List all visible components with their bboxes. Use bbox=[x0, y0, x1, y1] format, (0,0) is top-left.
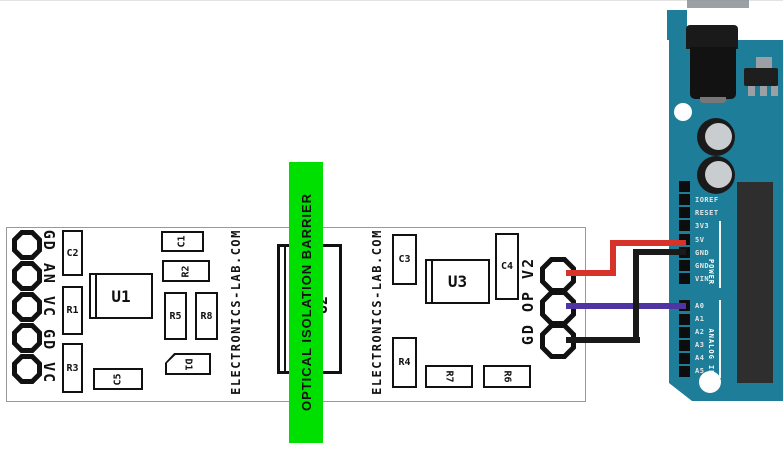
header-slot bbox=[737, 182, 773, 383]
pad-an-hole bbox=[17, 266, 37, 286]
analog-pin-a1 bbox=[679, 314, 690, 325]
component-r7: R7 bbox=[425, 365, 473, 388]
brand-text-left: ELECTRONICS-LAB.COM bbox=[229, 227, 243, 397]
component-c3: C3 bbox=[392, 234, 417, 285]
barrel-jack-cap bbox=[686, 25, 738, 49]
component-r5: R5 bbox=[164, 292, 187, 340]
pin-label-a5: A5 bbox=[695, 367, 704, 375]
mounting-hole-top bbox=[674, 103, 692, 121]
analog-pin-a4 bbox=[679, 353, 690, 364]
pad-vc-1-hole bbox=[17, 297, 37, 317]
barrel-jack-lip bbox=[700, 97, 726, 103]
power-pin-gnd2 bbox=[679, 260, 690, 271]
power-pin-3v3 bbox=[679, 220, 690, 231]
pin-label-a1: A1 bbox=[695, 315, 704, 323]
barrel-jack-body bbox=[690, 47, 736, 99]
voltage-regulator-leg-3 bbox=[771, 86, 778, 96]
component-c1: C1 bbox=[161, 231, 204, 252]
component-r3: R3 bbox=[62, 343, 83, 393]
wire-gnd-seg-3 bbox=[633, 249, 686, 255]
u1-pin1-mark bbox=[95, 275, 97, 317]
wire-gnd-seg-1 bbox=[566, 337, 640, 343]
wire-5v-seg-1 bbox=[566, 270, 616, 276]
wiring-diagram: GD AN VC GD VC C2 R1 R3 U1 C5 C1 R2 R5 R… bbox=[0, 0, 783, 451]
analog-pin-a5 bbox=[679, 366, 690, 377]
pin-label-gnd1: GND bbox=[695, 249, 709, 257]
u2-pin1-mark bbox=[284, 247, 286, 371]
analog-pin-a2 bbox=[679, 327, 690, 338]
wire-a0-seg-1 bbox=[566, 303, 686, 309]
pad-gd-2-hole bbox=[17, 328, 37, 348]
capacitor-2-top bbox=[705, 161, 732, 188]
voltage-regulator-body bbox=[744, 68, 778, 86]
component-u1: U1 bbox=[89, 273, 153, 319]
brand-text-right: ELECTRONICS-LAB.COM bbox=[370, 227, 384, 397]
pin-label-a4: A4 bbox=[695, 354, 704, 362]
top-edge-line bbox=[0, 0, 783, 1]
pin-label-3v3: 3V3 bbox=[695, 222, 709, 230]
pin-label-5v: 5V bbox=[695, 236, 704, 244]
pin-label-reset: RESET bbox=[695, 209, 719, 217]
right-pad-labels: GD OP V2 bbox=[521, 241, 535, 361]
component-c2: C2 bbox=[62, 230, 83, 276]
power-pin-vin bbox=[679, 273, 690, 284]
component-r6: R6 bbox=[483, 365, 531, 388]
pin-label-ioref: IOREF bbox=[695, 196, 719, 204]
component-c5: C5 bbox=[93, 368, 143, 390]
analog-group-line bbox=[719, 300, 721, 378]
component-r2: R2 bbox=[162, 260, 210, 282]
left-pad-labels: GD AN VC GD VC bbox=[42, 227, 56, 387]
analog-group-label: ANALOG IN bbox=[706, 328, 716, 376]
power-pin-ioref bbox=[679, 194, 690, 205]
voltage-regulator-leg-1 bbox=[748, 86, 755, 96]
wire-gnd-seg-2 bbox=[633, 249, 639, 343]
component-r1: R1 bbox=[62, 286, 83, 335]
component-c4: C4 bbox=[495, 233, 519, 300]
pin-label-a0: A0 bbox=[695, 302, 704, 310]
capacitor-1-top bbox=[705, 123, 732, 150]
pad-vc-2-hole bbox=[17, 359, 37, 379]
pin-label-a2: A2 bbox=[695, 328, 704, 336]
pin-label-a3: A3 bbox=[695, 341, 704, 349]
component-u3: U3 bbox=[425, 259, 490, 304]
power-group-label: POWER bbox=[706, 257, 716, 287]
barrier-label: OPTICAL ISOLATION BARRIER bbox=[298, 166, 314, 438]
component-r4: R4 bbox=[392, 337, 417, 388]
power-group-line bbox=[719, 221, 721, 288]
barrel-jack-shadow bbox=[687, 0, 749, 8]
d1-body: D1 bbox=[167, 355, 209, 373]
pad-gd-1-hole bbox=[17, 235, 37, 255]
component-r8: R8 bbox=[195, 292, 218, 340]
wire-5v-seg-3 bbox=[610, 240, 686, 246]
voltage-regulator-leg-2 bbox=[760, 86, 767, 96]
u3-pin1-mark bbox=[431, 261, 433, 302]
analog-pin-a3 bbox=[679, 340, 690, 351]
component-d1: D1 bbox=[165, 353, 211, 375]
power-pin-nc bbox=[679, 181, 690, 192]
power-pin-reset bbox=[679, 207, 690, 218]
